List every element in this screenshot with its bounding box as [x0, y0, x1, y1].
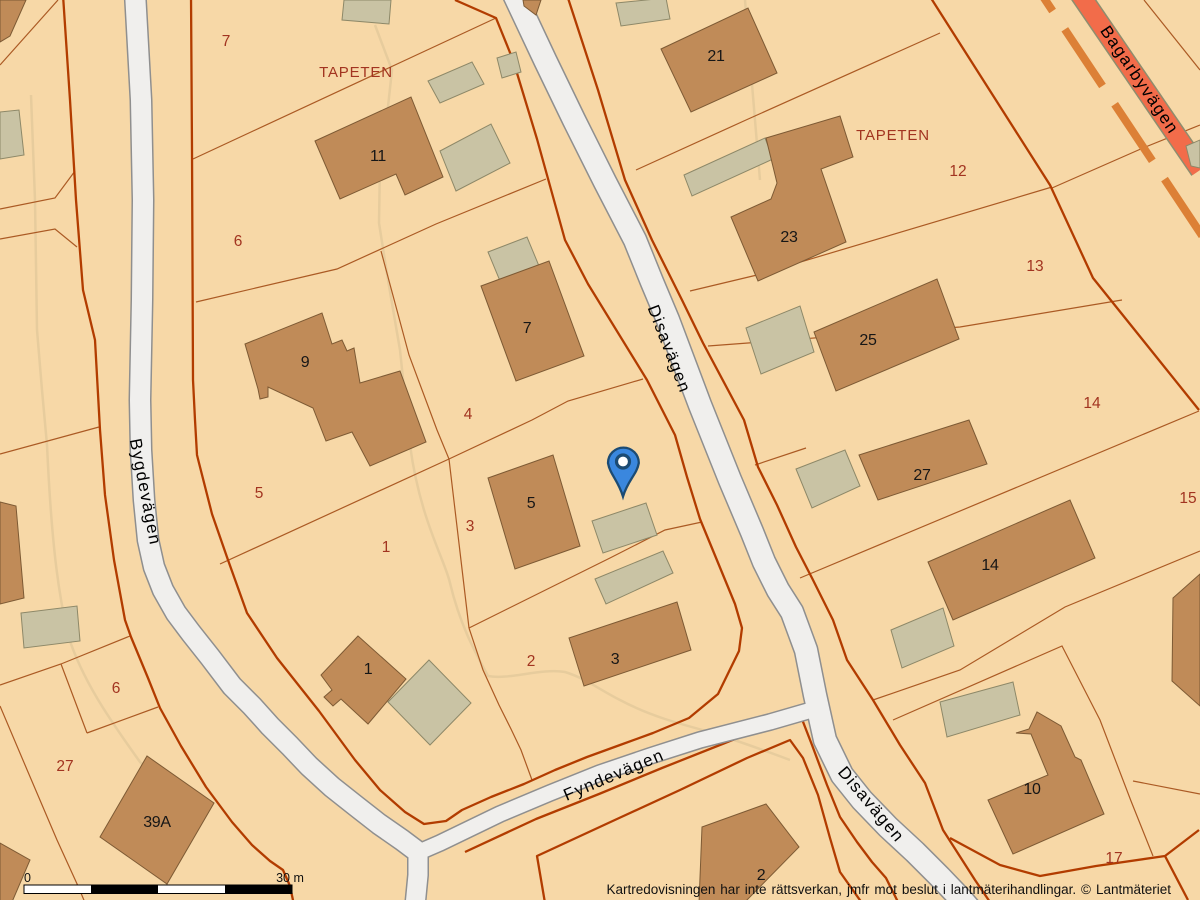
svg-text:13: 13	[1026, 258, 1043, 275]
svg-text:14: 14	[981, 557, 999, 574]
svg-text:2: 2	[527, 653, 536, 670]
svg-text:TAPETEN: TAPETEN	[319, 64, 393, 81]
svg-text:6: 6	[112, 680, 121, 697]
svg-text:5: 5	[527, 495, 536, 512]
svg-text:7: 7	[222, 33, 231, 50]
svg-text:10: 10	[1023, 781, 1041, 798]
svg-text:11: 11	[370, 148, 386, 165]
svg-text:1: 1	[364, 661, 373, 678]
svg-text:4: 4	[464, 406, 473, 423]
svg-text:7: 7	[523, 320, 532, 337]
svg-text:17: 17	[1105, 850, 1122, 867]
svg-text:25: 25	[859, 332, 877, 349]
svg-text:5: 5	[255, 485, 264, 502]
svg-text:0: 0	[24, 871, 31, 885]
svg-text:9: 9	[301, 354, 310, 371]
svg-text:6: 6	[234, 233, 243, 250]
svg-text:30 m: 30 m	[276, 871, 304, 885]
svg-text:27: 27	[56, 758, 73, 775]
svg-text:23: 23	[780, 229, 798, 246]
svg-text:21: 21	[707, 48, 725, 65]
svg-text:1: 1	[382, 539, 391, 556]
svg-text:3: 3	[466, 518, 475, 535]
svg-text:TAPETEN: TAPETEN	[856, 127, 930, 144]
svg-text:Kartredovisningen har inte rät: Kartredovisningen har inte rättsverkan, …	[607, 882, 1172, 897]
svg-text:14: 14	[1083, 395, 1101, 412]
svg-text:27: 27	[913, 467, 931, 484]
svg-text:3: 3	[611, 651, 620, 668]
svg-text:39A: 39A	[143, 814, 171, 831]
svg-text:12: 12	[949, 163, 966, 180]
svg-text:15: 15	[1179, 490, 1196, 507]
